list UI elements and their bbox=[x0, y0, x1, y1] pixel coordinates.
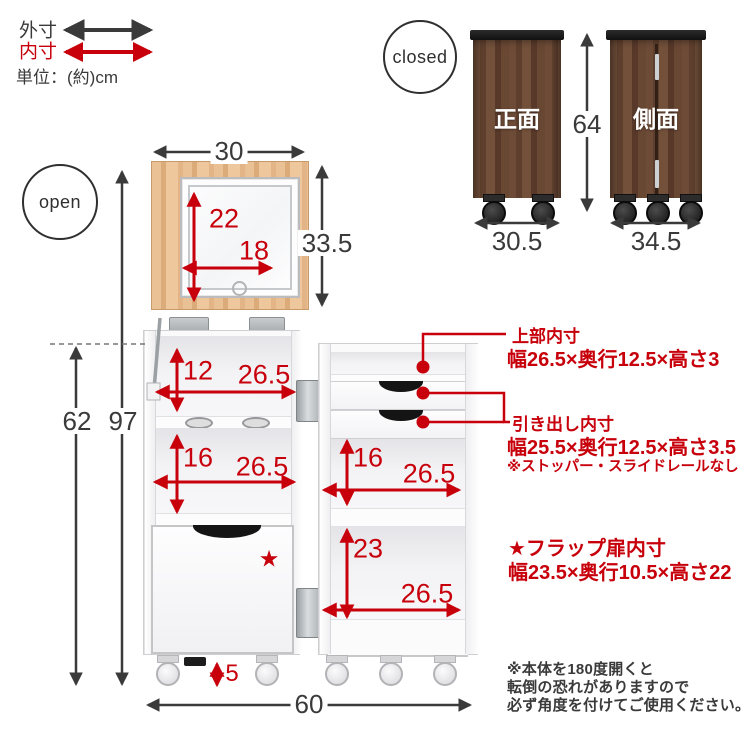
right-unit-caster-2 bbox=[376, 655, 406, 687]
flap-door: ★ bbox=[151, 525, 294, 654]
product-dimension-diagram: 外寸 内寸 単位：(約)cm closed 正面 側面 open bbox=[0, 0, 750, 750]
dim-label-ru-shelf-width: 26.5 bbox=[403, 461, 456, 488]
dim-label-ru-bottom-width: 26.5 bbox=[401, 581, 454, 608]
dim-label-side-width: 34.5 bbox=[627, 228, 686, 254]
annotation-drawer-title: 引き出し内寸 bbox=[512, 415, 614, 435]
side-caster-2 bbox=[643, 194, 673, 226]
dim-label-lu-top-height: 12 bbox=[183, 358, 213, 385]
dim-label-mirror-height: 22 bbox=[209, 206, 239, 233]
dim-label-ru-shelf-height: 16 bbox=[353, 445, 383, 472]
dim-label-lu-top-width: 26.5 bbox=[238, 362, 291, 389]
legend-unit: 単位：(約)cm bbox=[16, 69, 118, 86]
side-cabinet-top bbox=[606, 30, 706, 40]
side-caster-3 bbox=[676, 194, 706, 226]
drawer-2 bbox=[330, 410, 466, 439]
left-unit-caster-1 bbox=[153, 655, 183, 687]
side-caster-1 bbox=[610, 194, 640, 226]
power-switch bbox=[184, 657, 206, 666]
dim-label-panel-width: 30 bbox=[211, 138, 248, 164]
side-cabinet-body: 側面 bbox=[610, 40, 702, 198]
dim-label-total-width: 60 bbox=[291, 691, 328, 717]
annotation-flap-title: ★フラップ扉内寸 bbox=[508, 538, 666, 561]
left-unit-caster-2 bbox=[252, 655, 282, 687]
side-hinge-upper bbox=[655, 54, 659, 80]
legend-inner-label: 内寸 bbox=[19, 43, 57, 62]
dim-label-panel-height: 33.5 bbox=[298, 230, 357, 256]
dim-label-caster-height: 5 bbox=[225, 662, 238, 686]
right-unit-base bbox=[328, 619, 468, 657]
annotation-drawer-note: ※ストッパー・スライドレールなし bbox=[507, 459, 739, 476]
right-unit-left-wall bbox=[319, 344, 331, 654]
front-cabinet-body: 正面 bbox=[473, 40, 561, 198]
drawer-1-handle bbox=[379, 381, 423, 392]
open-badge: open bbox=[22, 164, 98, 240]
dim-label-lu-mid-width: 26.5 bbox=[236, 454, 289, 481]
right-unit-caster-3 bbox=[430, 655, 460, 687]
dim-label-mirror-width: 18 bbox=[239, 238, 269, 265]
front-face-label: 正面 bbox=[473, 100, 561, 134]
caution-line-2: 転倒の恐れがありますので bbox=[507, 679, 689, 697]
dim-label-ru-bottom-height: 23 bbox=[353, 536, 383, 563]
flap-door-handle bbox=[193, 525, 261, 538]
right-unit-caster-1 bbox=[322, 655, 352, 687]
annotation-drawer-dims: 幅25.5×奥行12.5×高さ3.5 bbox=[507, 437, 736, 460]
annotation-flap-dims: 幅23.5×奥行10.5×高さ22 bbox=[508, 562, 731, 585]
closed-badge: closed bbox=[383, 20, 457, 94]
dim-label-closed-height: 64 bbox=[569, 111, 606, 137]
right-unit-top-tray bbox=[328, 352, 468, 376]
dim-arrow-body-height bbox=[50, 344, 148, 684]
annotation-top-inner-title: 上部内寸 bbox=[512, 327, 580, 347]
front-caster-left bbox=[479, 194, 509, 226]
right-unit bbox=[318, 343, 478, 655]
caution-line-1: ※本体を180度開くと bbox=[507, 661, 654, 679]
dim-label-front-width: 30.5 bbox=[488, 228, 547, 254]
legend-outer-label: 外寸 bbox=[19, 22, 57, 41]
dim-label-total-height: 97 bbox=[105, 408, 142, 434]
annotation-top-inner-dims: 幅26.5×奥行12.5×高さ3 bbox=[507, 349, 719, 372]
front-cabinet-top bbox=[470, 30, 564, 40]
front-caster-right bbox=[528, 194, 558, 226]
side-hinge-lower bbox=[655, 160, 659, 188]
right-unit-right-wall bbox=[465, 344, 479, 654]
dim-label-lu-mid-height: 16 bbox=[183, 445, 213, 472]
drawer-1 bbox=[330, 381, 466, 410]
drawer-2-handle bbox=[379, 410, 423, 421]
side-face-label: 側面 bbox=[610, 100, 702, 134]
dim-label-body-height: 62 bbox=[59, 408, 96, 434]
caution-line-3: 必ず角度を付けてご使用ください。 bbox=[507, 697, 750, 715]
flap-door-star: ★ bbox=[259, 548, 280, 571]
touch-sensor-button bbox=[232, 281, 247, 296]
